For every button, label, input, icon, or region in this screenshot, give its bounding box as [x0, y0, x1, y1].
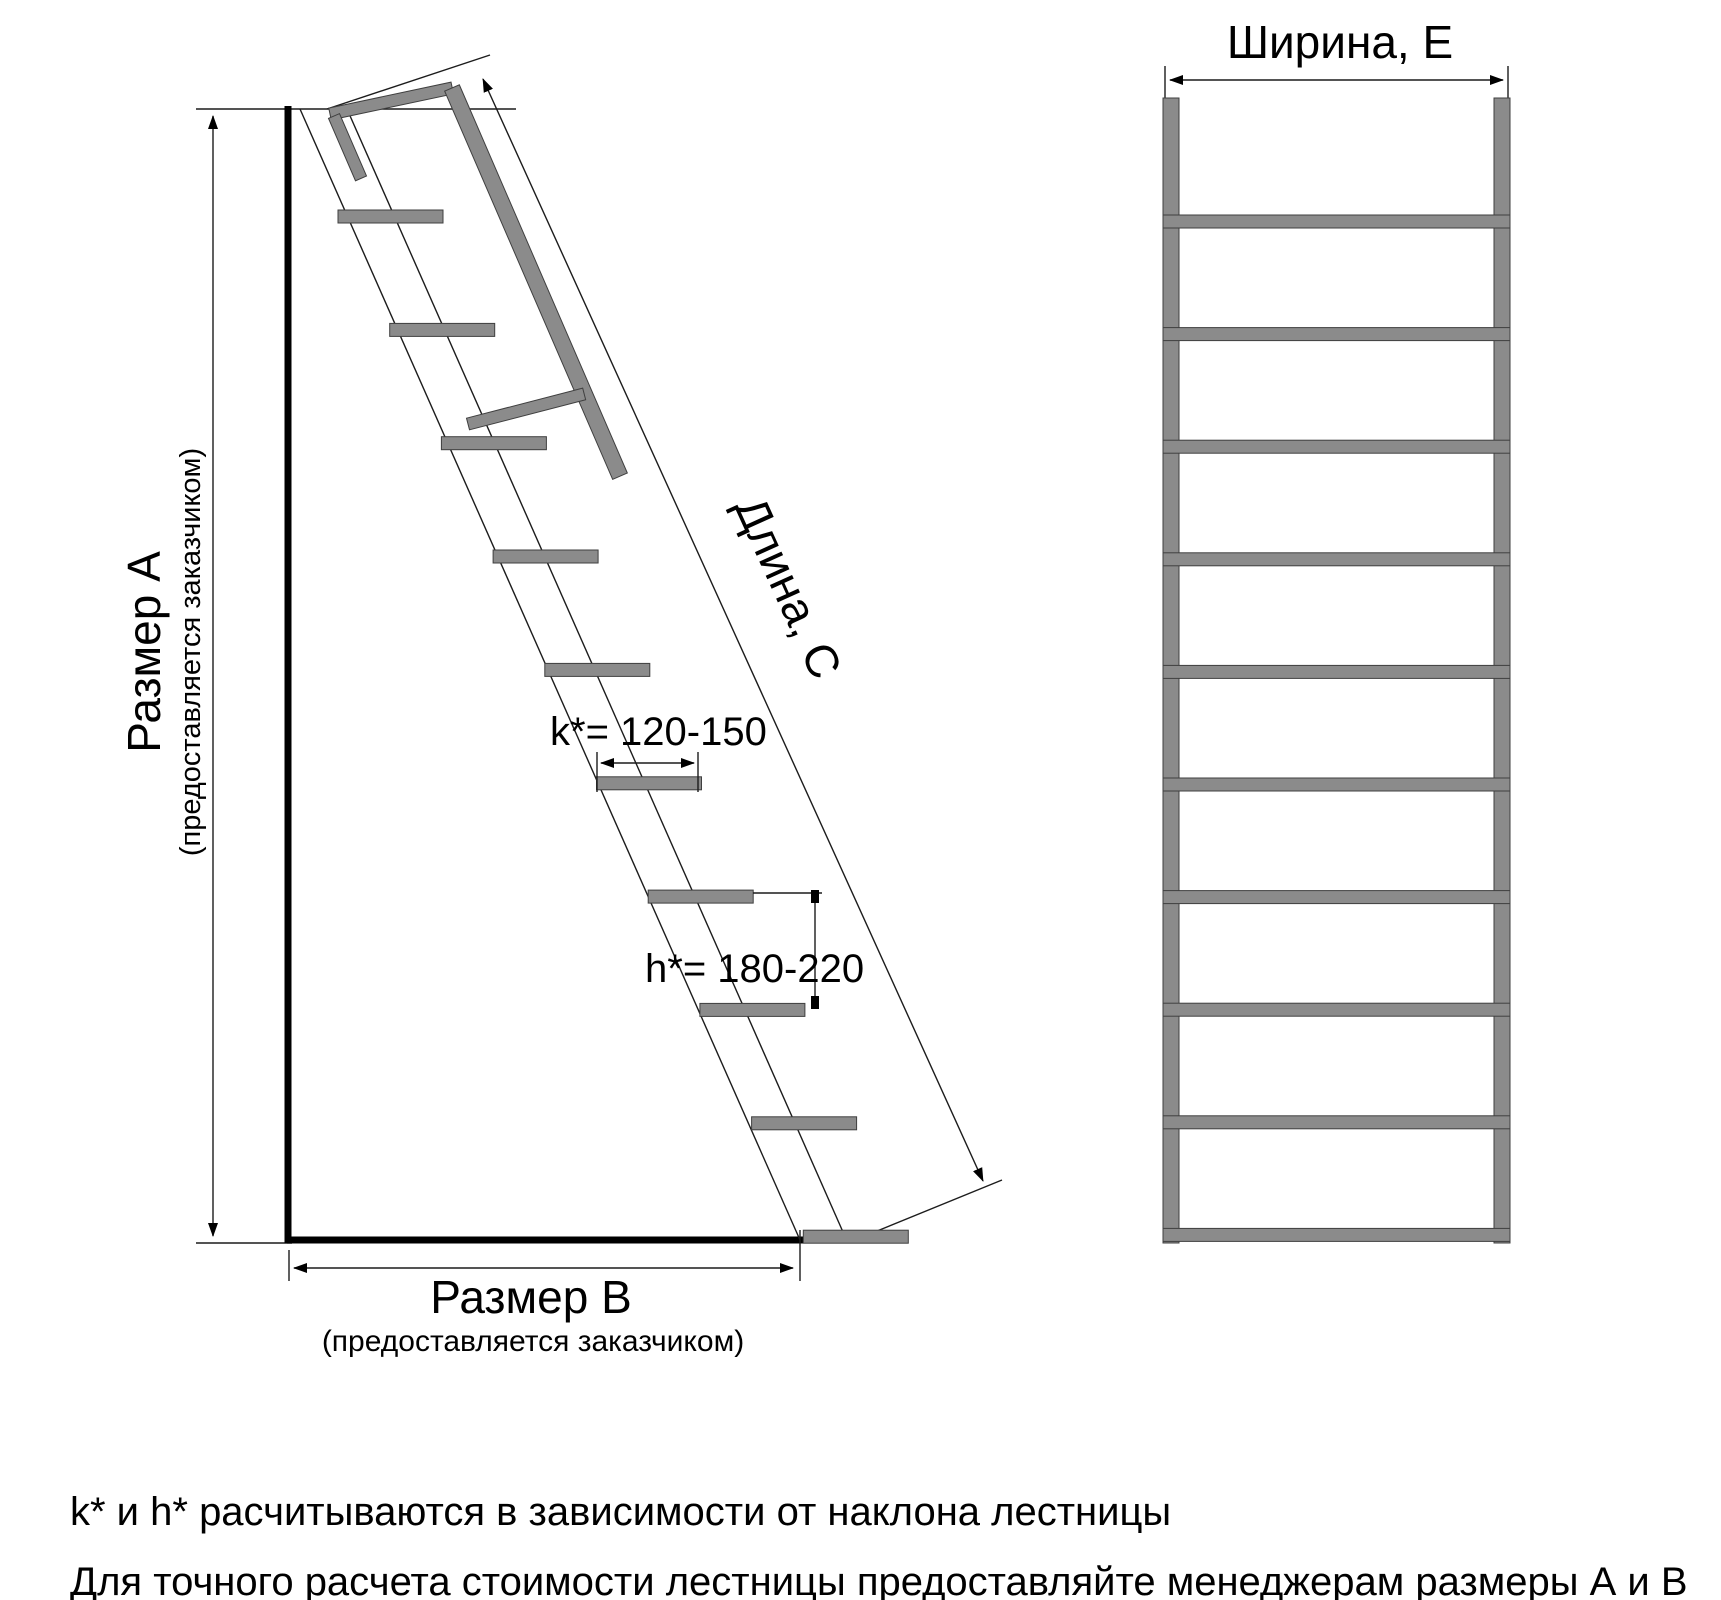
ladder-rung	[1163, 1116, 1510, 1129]
ladder-rung	[1163, 215, 1510, 228]
stair-step-side	[752, 1117, 857, 1130]
ladder-rung	[1163, 553, 1510, 566]
stair-step-side	[493, 550, 598, 563]
ladder-rung	[1163, 778, 1510, 791]
stair-step-side	[441, 437, 546, 450]
note-line-1: k* и h* расчитываются в зависимости от н…	[70, 1490, 1171, 1534]
ladder-rung	[1163, 891, 1510, 904]
k-annotation: k*= 120-150	[550, 710, 767, 754]
handrail-brace	[466, 388, 585, 430]
ladder-rungs-group	[1163, 215, 1510, 1241]
ladder-dimension-diagram: Размер А (предоставляется заказчиком) Дл…	[0, 0, 1721, 1600]
note-line-2: Для точного расчета стоимости лестницы п…	[70, 1560, 1688, 1600]
stair-step-side	[338, 210, 443, 223]
length-c-label: Длина, С	[725, 489, 852, 687]
ladder-rung	[1163, 328, 1510, 341]
handrail-frame	[328, 82, 627, 479]
stair-step-side	[700, 1003, 805, 1016]
stair-step-side	[545, 663, 650, 676]
ladder-rung	[1163, 1003, 1510, 1016]
size-a-note: (предоставляется заказчиком)	[175, 448, 207, 856]
h-bottom-tick	[811, 996, 819, 1009]
h-top-tick	[811, 890, 819, 903]
stair-step-side	[597, 777, 702, 790]
h-annotation: h*= 180-220	[645, 947, 864, 991]
size-a-label: Размер А	[118, 551, 170, 753]
stair-step-side	[648, 890, 753, 903]
width-e-label: Ширина, Е	[1227, 16, 1453, 68]
ladder-rung	[1163, 1228, 1510, 1241]
stair-step-side	[390, 323, 495, 336]
stair-step-side	[803, 1230, 908, 1243]
diagram-canvas: Размер А (предоставляется заказчиком) Дл…	[0, 0, 1721, 1600]
size-b-note: (предоставляется заказчиком)	[322, 1325, 744, 1358]
ladder-rung	[1163, 440, 1510, 453]
ladder-rung	[1163, 665, 1510, 678]
platform-left-stub	[328, 114, 366, 181]
size-b-label: Размер В	[430, 1271, 632, 1323]
